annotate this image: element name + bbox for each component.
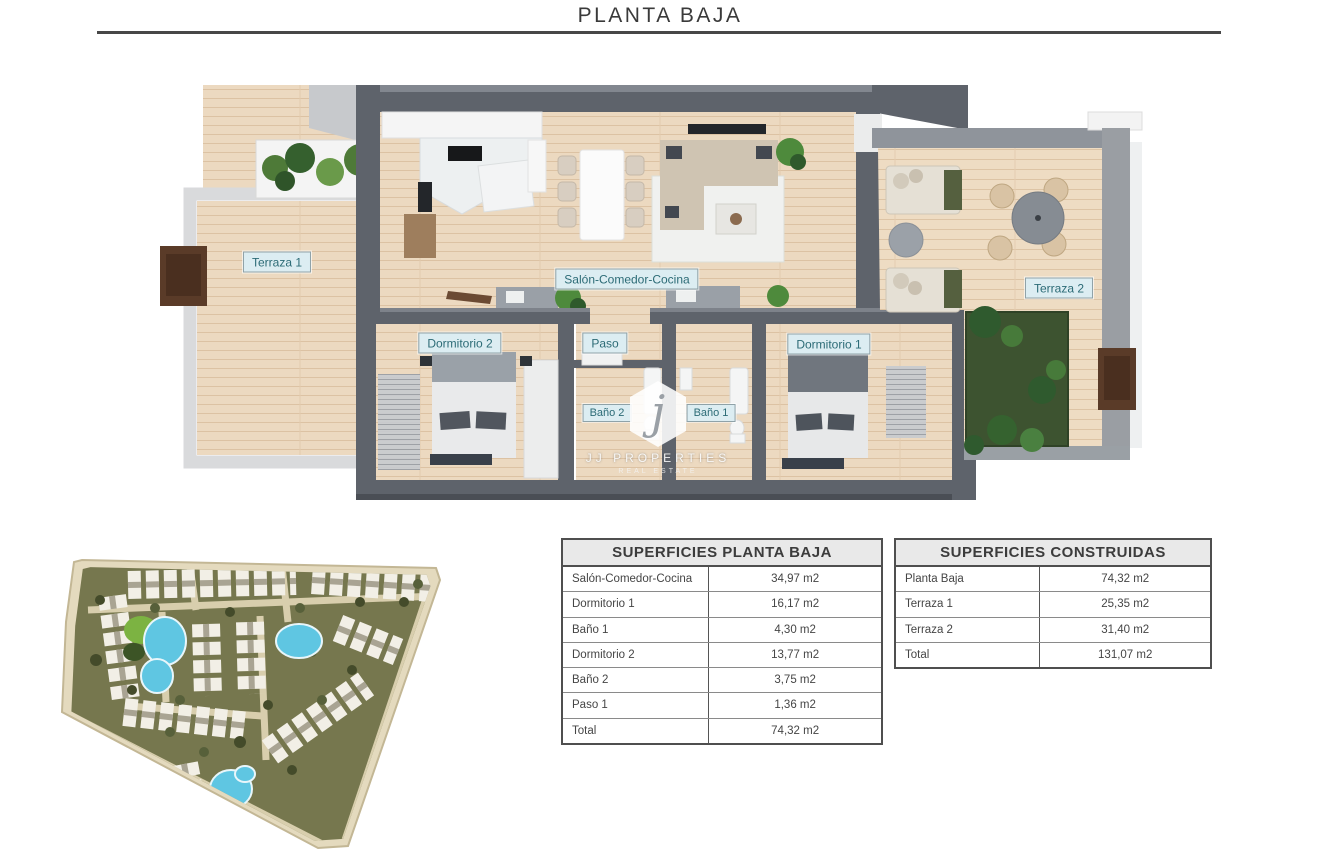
room-label-salon: Salón-Comedor-Cocina bbox=[555, 269, 698, 290]
room-label-bano1: Baño 1 bbox=[687, 404, 736, 422]
watermark-logo-hexagon-icon: j bbox=[628, 379, 688, 449]
room-label-paso: Paso bbox=[582, 333, 627, 354]
dining-set bbox=[558, 150, 644, 240]
table-title: SUPERFICIES CONSTRUIDAS bbox=[896, 540, 1210, 567]
table-row: Dormitorio 2 13,77 m2 bbox=[563, 643, 881, 668]
table-superficies-planta-baja: SUPERFICIES PLANTA BAJA Salón-Comedor-Co… bbox=[561, 538, 883, 745]
site-plan-illustration bbox=[62, 560, 440, 848]
bench-terraza1 bbox=[160, 246, 207, 306]
room-label-dormitorio1: Dormitorio 1 bbox=[787, 334, 870, 355]
table-superficies-construidas: SUPERFICIES CONSTRUIDAS Planta Baja 74,3… bbox=[894, 538, 1212, 669]
table-row: Baño 2 3,75 m2 bbox=[563, 668, 881, 693]
table-row: Planta Baja 74,32 m2 bbox=[896, 567, 1210, 592]
watermark-tagline: REAL ESTATE bbox=[548, 468, 768, 475]
bench-terraza2 bbox=[1098, 348, 1136, 410]
table-row: Dormitorio 1 16,17 m2 bbox=[563, 592, 881, 617]
room-label-bano2: Baño 2 bbox=[583, 404, 632, 422]
table-row: Terraza 2 31,40 m2 bbox=[896, 618, 1210, 643]
room-label-dormitorio2: Dormitorio 2 bbox=[418, 333, 501, 354]
table-row: Paso 1 1,36 m2 bbox=[563, 693, 881, 718]
lawn bbox=[964, 306, 1068, 455]
table-row: Total 74,32 m2 bbox=[563, 719, 881, 743]
table-row: Total 131,07 m2 bbox=[896, 643, 1210, 667]
table-row: Terraza 1 25,35 m2 bbox=[896, 592, 1210, 617]
table-row: Salón-Comedor-Cocina 34,97 m2 bbox=[563, 567, 881, 592]
watermark-brand: JJ PROPERTIES bbox=[548, 451, 768, 465]
table-title: SUPERFICIES PLANTA BAJA bbox=[563, 540, 881, 567]
room-label-terraza1: Terraza 1 bbox=[243, 252, 311, 273]
table-row: Baño 1 4,30 m2 bbox=[563, 618, 881, 643]
page: PLANTA BAJA bbox=[0, 0, 1320, 859]
room-label-terraza2: Terraza 2 bbox=[1025, 278, 1093, 299]
